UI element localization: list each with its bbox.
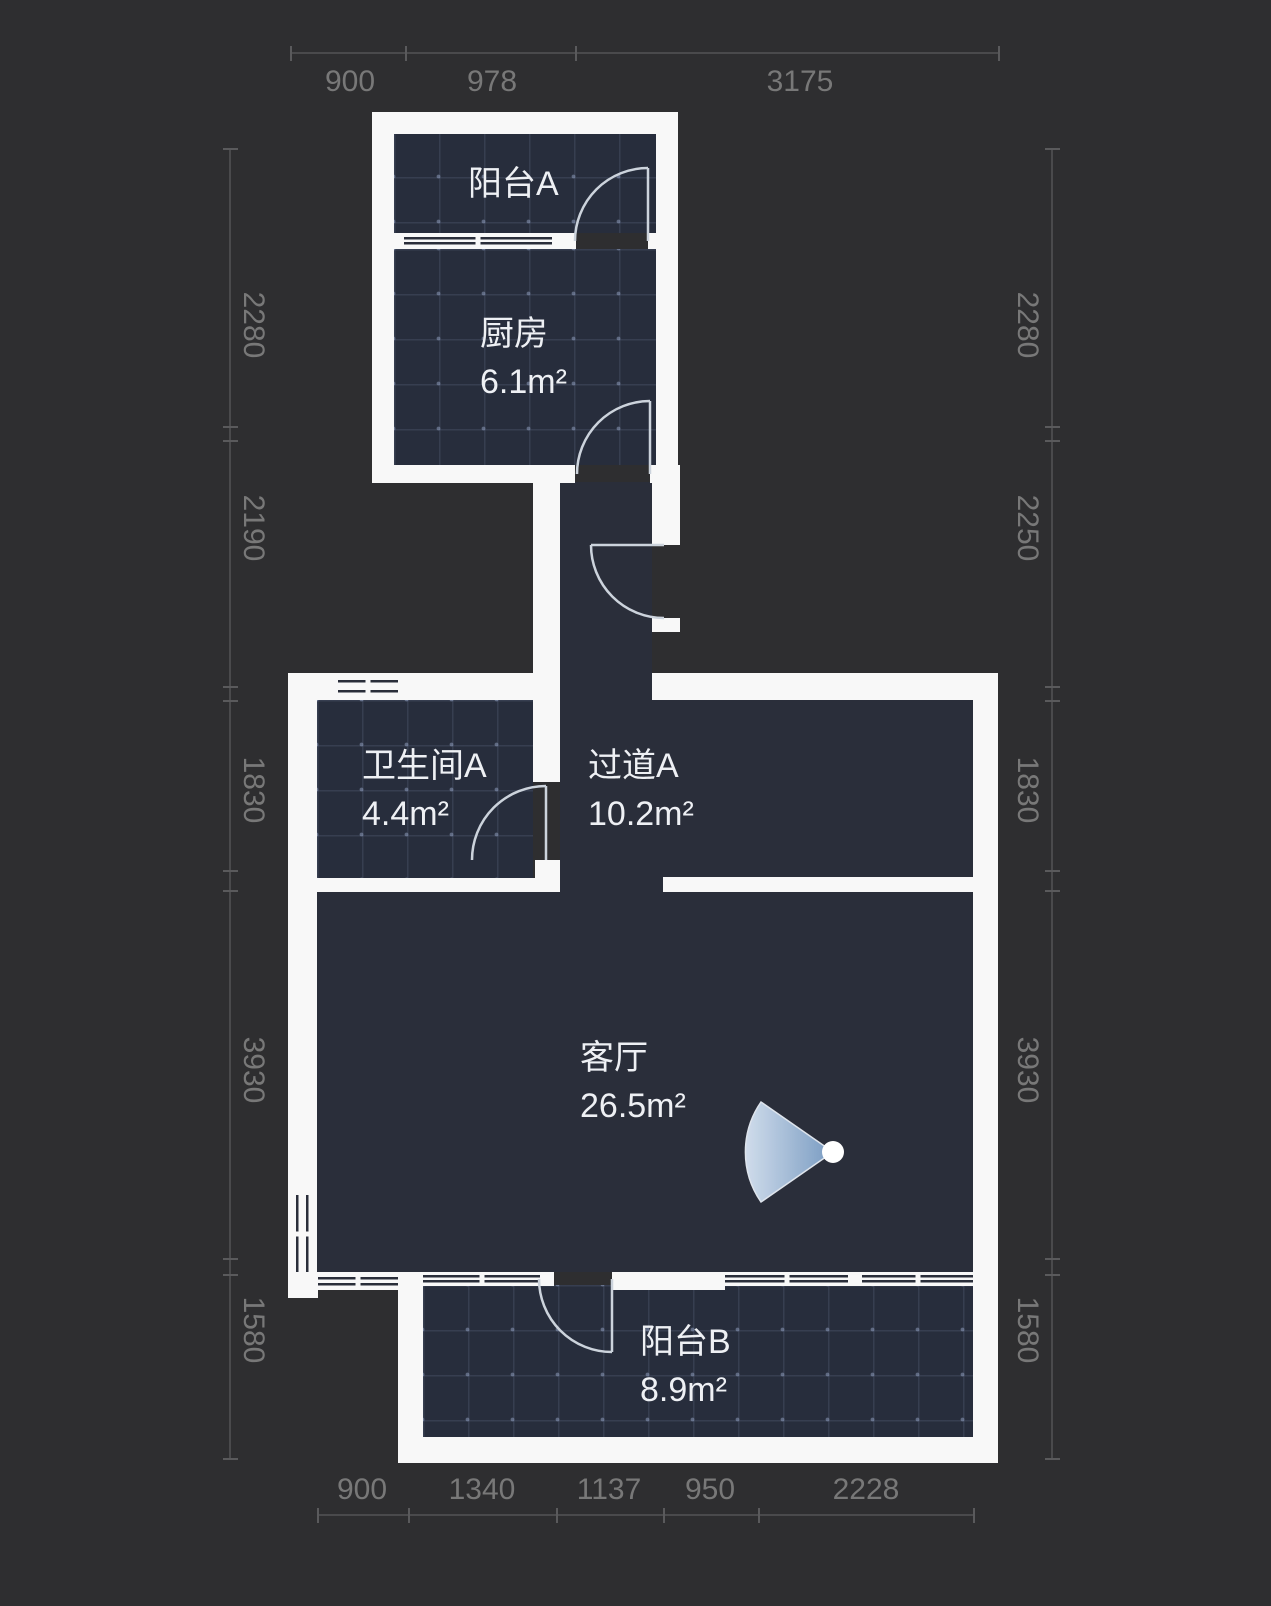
wall: [533, 465, 560, 700]
room-area: 4.4m²: [362, 790, 487, 838]
wall: [372, 112, 678, 134]
room-name: 厨房: [480, 315, 548, 353]
dim-label: 1580: [1010, 1297, 1044, 1364]
wall: [652, 618, 680, 632]
wall: [652, 673, 998, 700]
wall: [372, 112, 394, 482]
room-name: 客厅: [580, 1039, 648, 1077]
dim-label: 2280: [236, 292, 270, 359]
dim-label: 2250: [1010, 495, 1044, 562]
dim-label: 1830: [236, 757, 270, 824]
room-name: 阳台A: [468, 165, 559, 203]
dim-label: 1137: [577, 1473, 642, 1507]
window: [423, 1272, 540, 1286]
wall: [533, 700, 560, 782]
window: [725, 1272, 848, 1286]
dim-label: 2280: [1010, 292, 1044, 359]
window: [288, 1195, 317, 1272]
wall: [648, 233, 656, 249]
room-label-balcony-b: 阳台B 8.9m²: [640, 1318, 731, 1414]
wall: [288, 700, 317, 1195]
room-area: 8.9m²: [640, 1366, 731, 1414]
dim-label: 1830: [1010, 757, 1044, 824]
floor-plan: 阳台A 厨房 6.1m² 卫生间A 4.4m² 过道A 10.2m² 客厅 26…: [0, 0, 1271, 1606]
passage-opening: [560, 877, 663, 892]
dim-label: 2228: [833, 1473, 900, 1507]
room-label-bathroom-a: 卫生间A 4.4m²: [362, 742, 487, 838]
room-corridor[interactable]: [560, 482, 652, 700]
dim-label: 1340: [449, 1473, 516, 1507]
dim-label: 950: [685, 1473, 735, 1507]
room-label-hallway-a: 过道A 10.2m²: [588, 742, 694, 838]
wall: [288, 878, 560, 892]
room-area: 6.1m²: [480, 358, 567, 406]
dim-label: 1580: [236, 1297, 270, 1364]
wall: [398, 1437, 998, 1463]
room-area: 10.2m²: [588, 790, 694, 838]
wall: [612, 1272, 725, 1290]
window: [338, 673, 398, 700]
wall: [656, 112, 678, 482]
wall: [398, 1272, 423, 1437]
room-name: 卫生间A: [362, 747, 487, 785]
wall: [288, 673, 338, 700]
wall: [288, 1272, 318, 1298]
room-label-kitchen: 厨房 6.1m²: [480, 310, 567, 406]
window: [862, 1272, 973, 1286]
dim-label: 3930: [236, 1037, 270, 1104]
wall: [652, 465, 680, 545]
dim-label: 900: [337, 1473, 387, 1507]
dim-label: 3175: [767, 65, 834, 99]
window: [318, 1272, 398, 1290]
wall: [394, 233, 404, 249]
wall: [540, 1272, 554, 1286]
room-label-balcony-a: 阳台A: [468, 160, 559, 208]
wall: [398, 673, 560, 700]
wall: [552, 233, 576, 249]
dim-label: 3930: [1010, 1037, 1044, 1104]
room-name: 阳台B: [640, 1323, 731, 1361]
wall: [848, 1272, 862, 1286]
room-area: 26.5m²: [580, 1082, 686, 1130]
dim-label: 2190: [236, 495, 270, 562]
dim-label: 978: [467, 65, 517, 99]
room-label-living: 客厅 26.5m²: [580, 1034, 686, 1130]
dim-label: 900: [325, 65, 375, 99]
room-name: 过道A: [588, 747, 679, 785]
wall: [663, 877, 973, 892]
wall: [973, 673, 998, 1463]
window: [404, 233, 552, 249]
